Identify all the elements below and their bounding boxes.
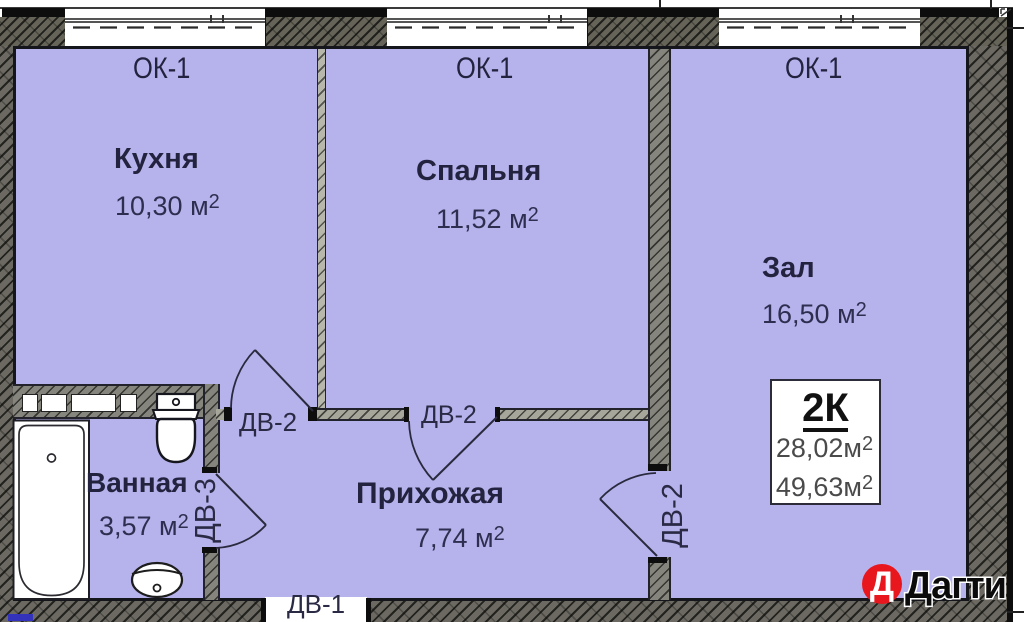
svg-text:Дагти: Дагти <box>905 565 1006 607</box>
